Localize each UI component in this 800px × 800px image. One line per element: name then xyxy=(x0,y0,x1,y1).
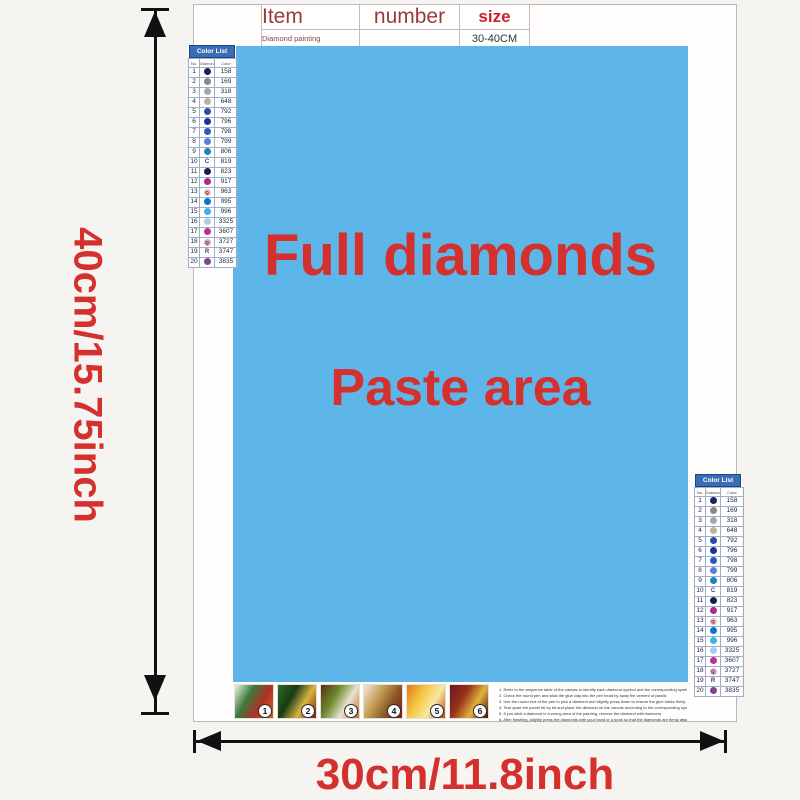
color-row: 3318 xyxy=(695,517,744,527)
color-row: 9806 xyxy=(695,577,744,587)
diamond-symbol-icon: R xyxy=(706,677,721,687)
color-row: 203835 xyxy=(695,687,744,697)
color-row: 4648 xyxy=(189,98,238,108)
color-code: 963 xyxy=(721,617,744,627)
color-row-number: 20 xyxy=(695,687,706,697)
color-row-number: 13 xyxy=(695,617,706,627)
arrow-left-icon xyxy=(197,731,221,751)
step-number-badge: 1 xyxy=(258,704,272,718)
color-row: 163325 xyxy=(695,647,744,657)
color-row: 14995 xyxy=(695,627,744,637)
diamond-symbol-icon xyxy=(200,258,215,268)
color-code: 819 xyxy=(215,158,238,168)
color-code: 806 xyxy=(215,148,238,158)
diamond-symbol-icon xyxy=(706,597,721,607)
color-code: 3747 xyxy=(721,677,744,687)
color-code: 648 xyxy=(721,527,744,537)
color-code: 648 xyxy=(215,98,238,108)
color-row-number: 18 xyxy=(695,667,706,677)
color-row-number: 17 xyxy=(695,657,706,667)
diamond-symbol-icon xyxy=(200,168,215,178)
color-row-number: 14 xyxy=(189,198,200,208)
color-row-number: 15 xyxy=(189,208,200,218)
height-arrow-bottom-cap xyxy=(141,712,169,715)
diamond-symbol-icon xyxy=(706,537,721,547)
diamond-symbol-icon xyxy=(200,88,215,98)
color-code: 3325 xyxy=(721,647,744,657)
color-row-number: 1 xyxy=(695,497,706,507)
color-row-number: 6 xyxy=(695,547,706,557)
width-dimension-label: 30cm/11.8inch xyxy=(316,750,614,800)
color-row-number: 14 xyxy=(695,627,706,637)
color-code: 3835 xyxy=(721,687,744,697)
color-row-number: 18 xyxy=(189,238,200,248)
color-row-number: 6 xyxy=(189,118,200,128)
color-row: 8799 xyxy=(189,138,238,148)
color-row-number: 11 xyxy=(695,597,706,607)
color-code: 806 xyxy=(721,577,744,587)
item-number-size-table: Item number size Diamond painting 30-40C… xyxy=(261,4,530,48)
color-row-number: 8 xyxy=(189,138,200,148)
diamond-symbol-icon xyxy=(200,78,215,88)
diamond-symbol-icon xyxy=(200,98,215,108)
color-row: 1158 xyxy=(695,497,744,507)
color-code: 3607 xyxy=(721,657,744,667)
step-number-badge: 5 xyxy=(430,704,444,718)
diamond-symbol-icon xyxy=(200,128,215,138)
arrow-right-icon xyxy=(700,731,724,751)
color-code: 995 xyxy=(721,627,744,637)
color-row-number: 16 xyxy=(189,218,200,228)
diamond-symbol-icon xyxy=(706,647,721,657)
color-list-title: Color List xyxy=(189,45,235,58)
diamond-symbol-icon: C xyxy=(200,158,215,168)
color-code: 158 xyxy=(721,497,744,507)
color-row: 173607 xyxy=(189,228,238,238)
diamond-symbol-icon xyxy=(200,68,215,78)
color-code: 799 xyxy=(215,138,238,148)
instruction-text: 1. Refer to the sequence table of the ca… xyxy=(499,687,687,723)
color-code: 3727 xyxy=(721,667,744,677)
color-row: 13Q963 xyxy=(189,188,238,198)
instruction-line: 1. Refer to the sequence table of the ca… xyxy=(499,687,687,692)
color-row: 15996 xyxy=(189,208,238,218)
color-row: 203835 xyxy=(189,258,238,268)
color-row: 12917 xyxy=(695,607,744,617)
color-list-right: Color List No. Diamond Color 11582169331… xyxy=(694,474,742,697)
height-arrow-line xyxy=(154,10,157,712)
color-row: 2169 xyxy=(189,78,238,88)
arrow-down-icon xyxy=(144,675,166,701)
color-code: 796 xyxy=(721,547,744,557)
color-row-number: 15 xyxy=(695,637,706,647)
paste-area-title-line2: Paste area xyxy=(233,358,688,418)
color-row: 6796 xyxy=(695,547,744,557)
color-code: 3607 xyxy=(215,228,238,238)
diamond-symbol-icon xyxy=(706,497,721,507)
diamond-symbol-icon xyxy=(706,557,721,567)
color-code: 3747 xyxy=(215,248,238,258)
width-arrow-right-cap xyxy=(724,730,727,753)
color-code: 819 xyxy=(721,587,744,597)
paste-area-title-line1: Full diamonds xyxy=(233,222,688,289)
color-row: 7798 xyxy=(695,557,744,567)
step-photo: 3 xyxy=(320,684,360,719)
color-list-color-header: Color xyxy=(721,488,744,497)
color-code: 917 xyxy=(721,607,744,617)
diamond-symbol-icon xyxy=(200,228,215,238)
color-row-number: 13 xyxy=(189,188,200,198)
color-row: 2169 xyxy=(695,507,744,517)
color-row-number: 19 xyxy=(189,248,200,258)
diamond-symbol-icon xyxy=(200,218,215,228)
diamond-symbol-icon xyxy=(706,507,721,517)
color-row: 173607 xyxy=(695,657,744,667)
diamond-symbol-icon xyxy=(200,198,215,208)
height-dimension-label: 40cm/15.75inch xyxy=(65,227,110,523)
color-row: 14995 xyxy=(189,198,238,208)
color-row-number: 4 xyxy=(189,98,200,108)
color-row: 9806 xyxy=(189,148,238,158)
color-row-number: 19 xyxy=(695,677,706,687)
diamond-symbol-icon: Q xyxy=(706,617,721,627)
color-row-number: 2 xyxy=(189,78,200,88)
color-row: 6796 xyxy=(189,118,238,128)
color-row: 10C819 xyxy=(695,587,744,597)
color-row: 18Q3727 xyxy=(695,667,744,677)
color-row-number: 7 xyxy=(189,128,200,138)
diamond-symbol-icon xyxy=(706,517,721,527)
paste-area: Full diamonds Paste area xyxy=(233,46,688,682)
step-number-badge: 4 xyxy=(387,704,401,718)
color-code: 917 xyxy=(215,178,238,188)
color-list-diamond-header: Diamond xyxy=(200,59,215,68)
color-row: 8799 xyxy=(695,567,744,577)
diamond-symbol-icon xyxy=(200,148,215,158)
color-row-number: 12 xyxy=(695,607,706,617)
color-row-number: 12 xyxy=(189,178,200,188)
color-list-no-header: No. xyxy=(189,59,200,68)
color-row: 12917 xyxy=(189,178,238,188)
step-number-badge: 6 xyxy=(473,704,487,718)
diamond-symbol-icon xyxy=(200,108,215,118)
color-code: 3727 xyxy=(215,238,238,248)
step-photo: 2 xyxy=(277,684,317,719)
color-row: 5792 xyxy=(695,537,744,547)
diamond-symbol-icon xyxy=(706,527,721,537)
color-row: 15996 xyxy=(695,637,744,647)
width-arrow-line xyxy=(196,740,724,743)
color-list-color-header: Color xyxy=(215,59,238,68)
diamond-symbol-icon xyxy=(706,567,721,577)
color-code: 169 xyxy=(215,78,238,88)
instruction-line: 2. Check the round pen and stick the glu… xyxy=(499,693,687,698)
color-row: 7798 xyxy=(189,128,238,138)
color-code: 996 xyxy=(721,637,744,647)
diamond-symbol-icon xyxy=(200,178,215,188)
color-code: 3835 xyxy=(215,258,238,268)
step-number-badge: 3 xyxy=(344,704,358,718)
color-row: 3318 xyxy=(189,88,238,98)
color-row: 11823 xyxy=(695,597,744,607)
diamond-symbol-icon: Q xyxy=(706,667,721,677)
diamond-symbol-icon xyxy=(706,657,721,667)
step-photo: 1 xyxy=(234,684,274,719)
step-number-badge: 2 xyxy=(301,704,315,718)
color-row-number: 2 xyxy=(695,507,706,517)
instruction-line: 3. Use the round end of the pen to pick … xyxy=(499,699,687,704)
color-row-number: 10 xyxy=(189,158,200,168)
diamond-symbol-icon: R xyxy=(200,248,215,258)
color-code: 158 xyxy=(215,68,238,78)
color-row: 13Q963 xyxy=(695,617,744,627)
color-row-number: 10 xyxy=(695,587,706,597)
color-code: 799 xyxy=(721,567,744,577)
instruction-line: 5. If you stick a diamond in a wrong are… xyxy=(499,711,687,716)
color-code: 996 xyxy=(215,208,238,218)
color-code: 823 xyxy=(215,168,238,178)
color-row-number: 11 xyxy=(189,168,200,178)
color-row: 4648 xyxy=(695,527,744,537)
color-code: 318 xyxy=(215,88,238,98)
color-code: 798 xyxy=(721,557,744,567)
diamond-symbol-icon xyxy=(706,627,721,637)
diamond-symbol-icon xyxy=(200,118,215,128)
color-code: 798 xyxy=(215,128,238,138)
color-code: 318 xyxy=(721,517,744,527)
color-row-number: 16 xyxy=(695,647,706,657)
step-photo: 6 xyxy=(449,684,489,719)
color-row: 11823 xyxy=(189,168,238,178)
diamond-symbol-icon xyxy=(706,687,721,697)
color-row-number: 1 xyxy=(189,68,200,78)
instruction-line: 4. Tear apart the parcel bit by bit and … xyxy=(499,705,687,710)
item-header: Item xyxy=(262,5,360,30)
color-code: 823 xyxy=(721,597,744,607)
color-row: 19R3747 xyxy=(695,677,744,687)
color-row-number: 17 xyxy=(189,228,200,238)
color-row-number: 20 xyxy=(189,258,200,268)
color-row-number: 5 xyxy=(695,537,706,547)
color-list-title: Color List xyxy=(695,474,741,487)
step-photo: 5 xyxy=(406,684,446,719)
color-list-no-header: No. xyxy=(695,488,706,497)
color-row-number: 4 xyxy=(695,527,706,537)
color-code: 169 xyxy=(721,507,744,517)
diamond-symbol-icon xyxy=(706,637,721,647)
product-dimension-diagram: Item number size Diamond painting 30-40C… xyxy=(0,0,800,800)
color-row: 1158 xyxy=(189,68,238,78)
diamond-symbol-icon xyxy=(706,547,721,557)
color-row: 18Q3727 xyxy=(189,238,238,248)
color-code: 792 xyxy=(721,537,744,547)
diamond-symbol-icon xyxy=(200,208,215,218)
diamond-symbol-icon xyxy=(706,607,721,617)
color-list-diamond-header: Diamond xyxy=(706,488,721,497)
color-row-number: 3 xyxy=(189,88,200,98)
color-code: 995 xyxy=(215,198,238,208)
color-row: 19R3747 xyxy=(189,248,238,258)
color-row-number: 9 xyxy=(189,148,200,158)
width-arrow-left-cap xyxy=(193,730,196,753)
diamond-symbol-icon: Q xyxy=(200,238,215,248)
instruction-line: 6. After finishing, slightly press the d… xyxy=(499,717,687,722)
item-value: Diamond painting xyxy=(262,30,360,48)
number-header: number xyxy=(360,5,460,30)
color-code: 963 xyxy=(215,188,238,198)
color-row: 10C819 xyxy=(189,158,238,168)
diamond-symbol-icon xyxy=(706,577,721,587)
color-code: 796 xyxy=(215,118,238,128)
step-photo: 4 xyxy=(363,684,403,719)
diamond-symbol-icon: C xyxy=(706,587,721,597)
color-code: 3325 xyxy=(215,218,238,228)
color-row: 163325 xyxy=(189,218,238,228)
color-row-number: 9 xyxy=(695,577,706,587)
diamond-symbol-icon xyxy=(200,138,215,148)
color-code: 792 xyxy=(215,108,238,118)
color-row-number: 7 xyxy=(695,557,706,567)
number-value xyxy=(360,30,460,48)
color-row: 5792 xyxy=(189,108,238,118)
color-row-number: 8 xyxy=(695,567,706,577)
color-row-number: 3 xyxy=(695,517,706,527)
color-list-left: Color List No. Diamond Color 11582169331… xyxy=(188,45,236,268)
size-header: size xyxy=(460,5,530,30)
diamond-symbol-icon: Q xyxy=(200,188,215,198)
size-value: 30-40CM xyxy=(460,30,530,48)
step-photo-strip: 123456 xyxy=(234,684,489,719)
color-row-number: 5 xyxy=(189,108,200,118)
arrow-up-icon xyxy=(144,11,166,37)
